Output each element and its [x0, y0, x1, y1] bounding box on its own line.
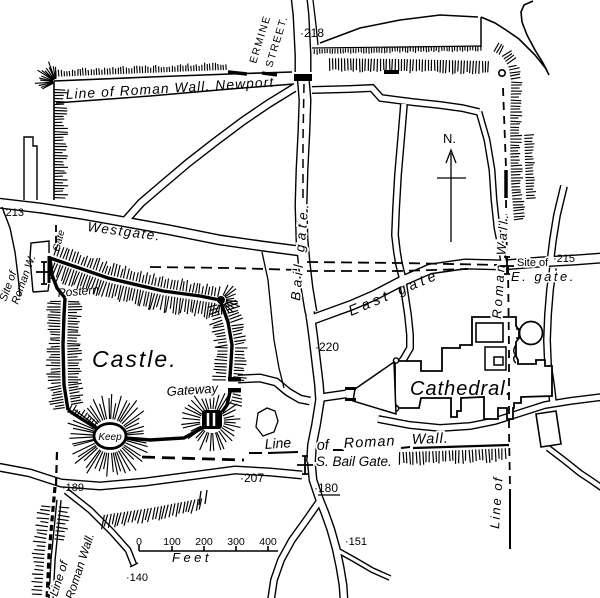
svg-text:·189: ·189 [62, 482, 84, 494]
svg-text:Line: Line [264, 434, 292, 452]
svg-text:Keep: Keep [98, 432, 122, 443]
svg-text:Castle.: Castle. [92, 346, 178, 372]
svg-text:0: 0 [136, 536, 142, 548]
svg-text:Site of: Site of [517, 257, 549, 269]
svg-text:·218: ·218 [300, 26, 324, 40]
svg-text:Cathedral.: Cathedral. [410, 378, 512, 400]
svg-text:·180: ·180 [314, 481, 338, 495]
svg-text:Roman: Roman [343, 433, 396, 452]
svg-text:100: 100 [163, 536, 181, 548]
svg-text:Wall.: Wall. [412, 431, 450, 448]
svg-text:E. gate.: E. gate. [511, 269, 576, 284]
svg-text:N.: N. [443, 131, 456, 146]
svg-text:200: 200 [195, 536, 213, 548]
svg-text:·220: ·220 [315, 340, 339, 354]
svg-text:·140: ·140 [126, 572, 148, 584]
svg-text:Feet: Feet [172, 550, 212, 565]
svg-text:·213: ·213 [2, 207, 24, 219]
svg-text:·151: ·151 [345, 536, 367, 548]
svg-text:·215: ·215 [553, 253, 575, 265]
svg-text:400: 400 [259, 536, 277, 548]
svg-text:·207: ·207 [240, 471, 264, 485]
svg-text:S. Bail Gate.: S. Bail Gate. [316, 454, 392, 469]
svg-text:300: 300 [227, 536, 245, 548]
